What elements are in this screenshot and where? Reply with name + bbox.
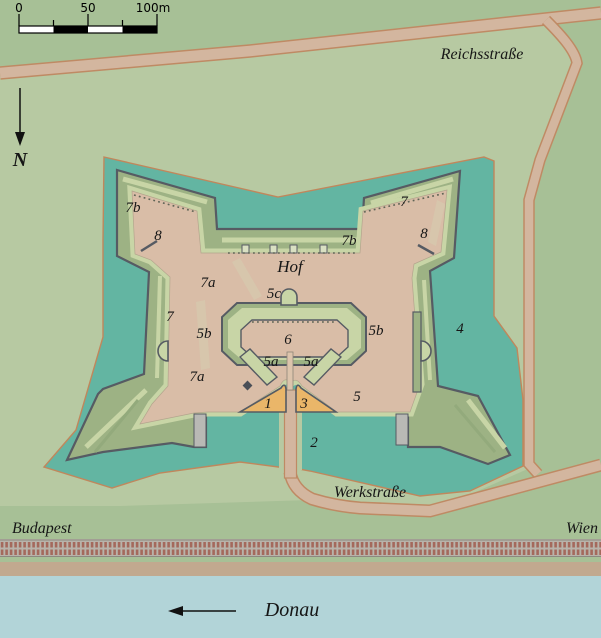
label-donau: Donau	[264, 599, 319, 621]
label-7b-center: 7b	[342, 233, 358, 249]
east-inner-wall	[413, 312, 421, 392]
label-1: 1	[264, 396, 272, 412]
label-wien: Wien	[566, 520, 598, 537]
scale-tick-0: 0	[15, 1, 23, 15]
label-6: 6	[284, 332, 292, 348]
label-4: 4	[456, 321, 464, 337]
river-embankment	[0, 562, 601, 576]
gate-passage	[287, 352, 293, 390]
map-canvas: 0 50 100m N Reichsstraße Werkstraße Buda…	[0, 0, 601, 638]
label-5a-left: 5a	[264, 354, 279, 370]
fort-map: 0 50 100m N Reichsstraße Werkstraße Buda…	[0, 0, 601, 638]
label-5c: 5c	[267, 286, 282, 302]
label-5: 5	[353, 389, 361, 405]
label-5b-right: 5b	[369, 323, 385, 339]
label-7a-upper: 7a	[201, 275, 216, 291]
scale-tick-50: 50	[80, 1, 95, 15]
caponier-5c	[281, 289, 297, 305]
label-2: 2	[310, 435, 318, 451]
rail-track-north	[0, 542, 601, 548]
label-3: 3	[299, 396, 308, 412]
label-5a-right: 5a	[304, 354, 319, 370]
casemate-east	[396, 414, 408, 445]
label-budapest: Budapest	[12, 520, 72, 537]
scale-tick-100m: 100m	[136, 1, 171, 15]
label-werkstrasse: Werkstraße	[334, 484, 406, 501]
casemate-west	[194, 414, 206, 447]
label-5b-left: 5b	[197, 326, 213, 342]
label-7b-left: 7b	[126, 200, 142, 216]
label-7a-lower: 7a	[190, 369, 205, 385]
rail-track-south	[0, 550, 601, 556]
label-reichsstrasse: Reichsstraße	[440, 46, 524, 63]
label-8-left: 8	[154, 228, 162, 244]
label-8-right: 8	[420, 226, 428, 242]
north-label: N	[12, 149, 29, 171]
label-hof: Hof	[276, 257, 305, 276]
railway	[0, 539, 601, 557]
